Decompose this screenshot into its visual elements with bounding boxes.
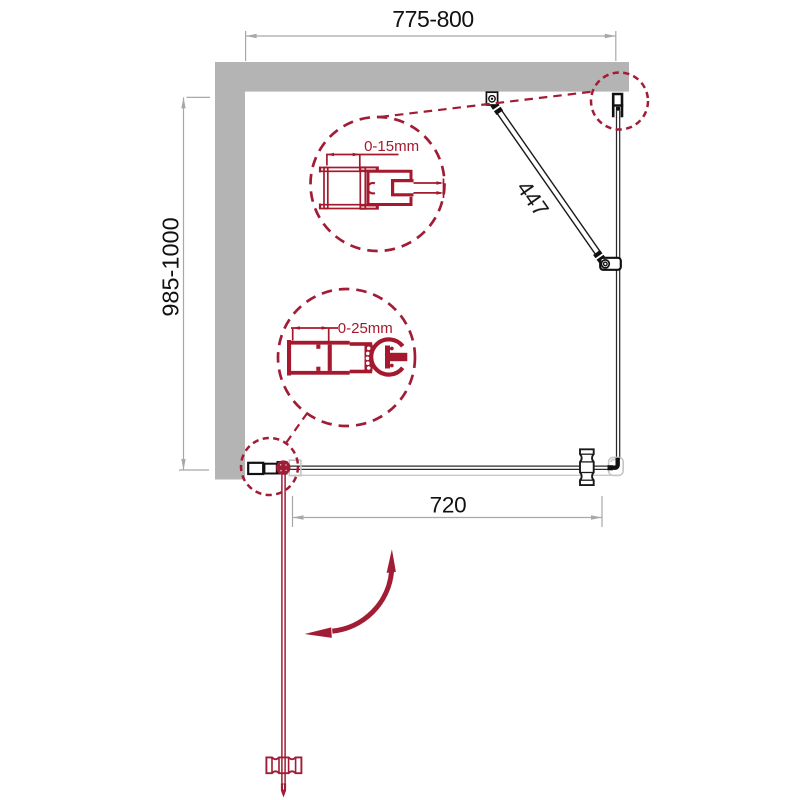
svg-text:0-25mm: 0-25mm: [338, 320, 393, 337]
svg-text:0-15mm: 0-15mm: [364, 138, 419, 155]
svg-text:775-800: 775-800: [392, 6, 474, 32]
svg-text:720: 720: [430, 493, 467, 518]
svg-text:985-1000: 985-1000: [158, 217, 184, 316]
